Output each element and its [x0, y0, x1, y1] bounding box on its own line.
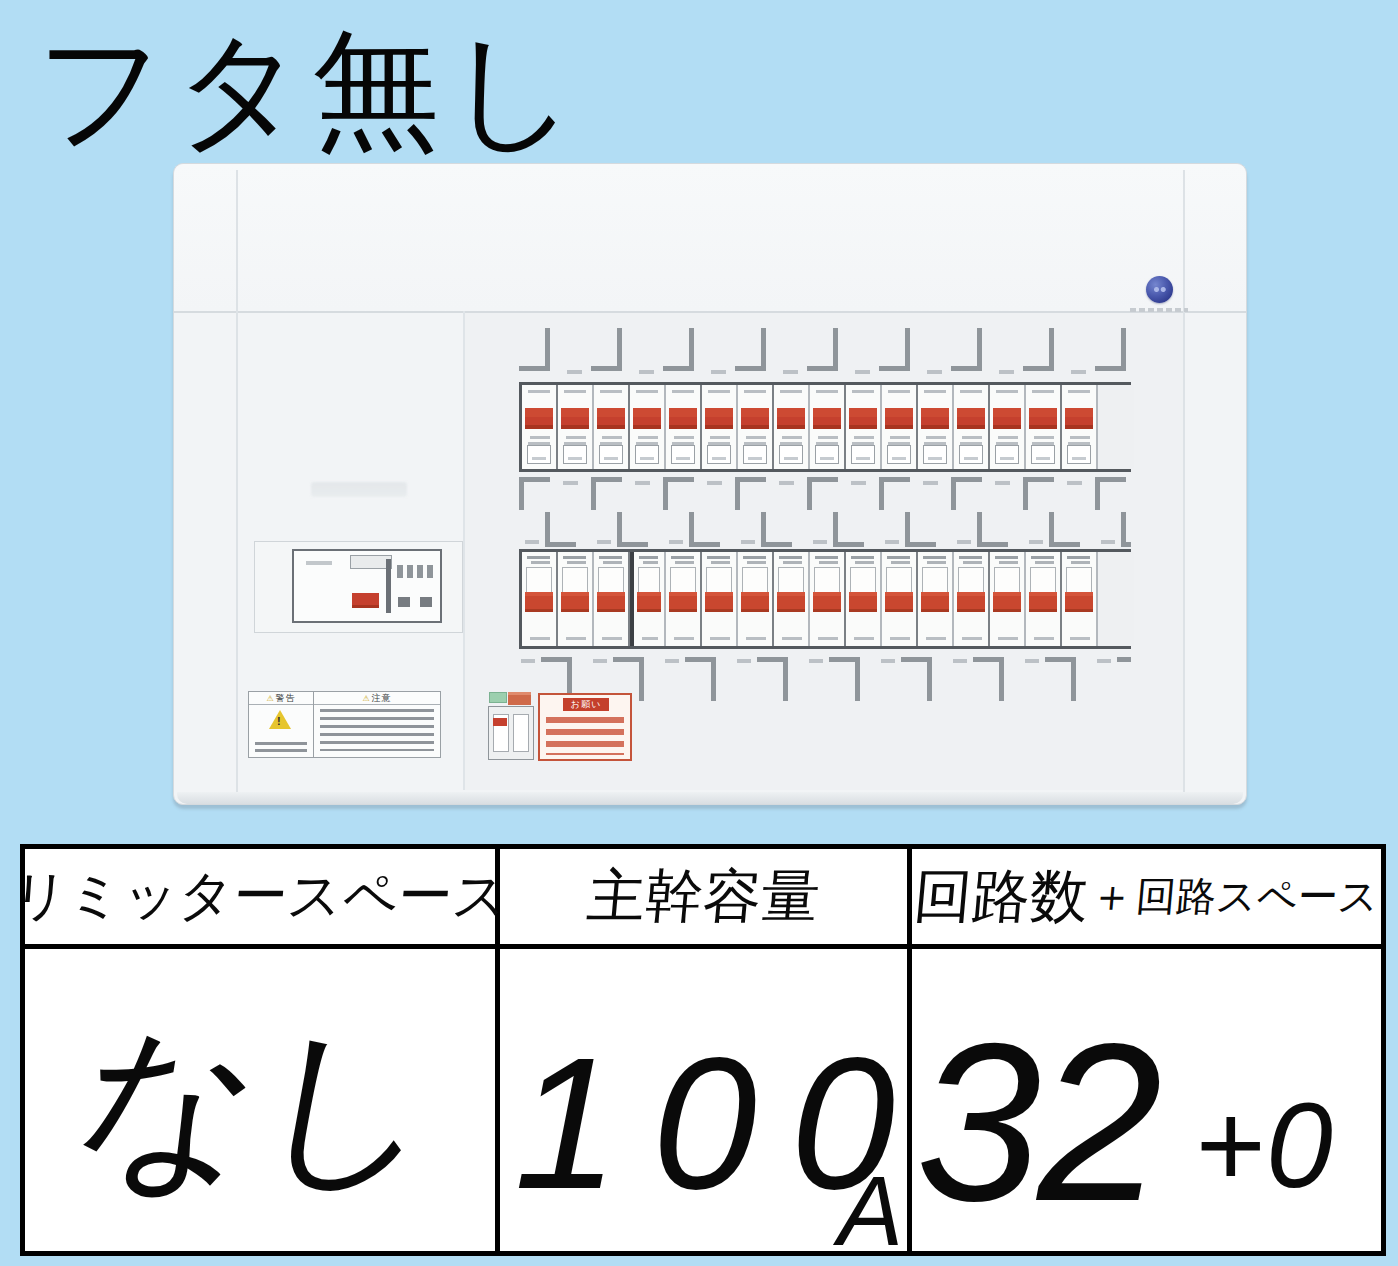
caution-fine-print — [320, 709, 434, 751]
circuit-breaker — [594, 385, 630, 469]
circuit-breaker — [702, 552, 738, 646]
circuit-breaker — [810, 552, 846, 646]
panel-right-flange-seam — [1183, 170, 1185, 794]
circuit-breaker — [882, 385, 918, 469]
warning-fine-print — [255, 742, 307, 752]
warning-triangle-icon: ⚠ — [362, 694, 370, 703]
circuit-breaker — [1026, 385, 1062, 469]
circuit-breaker — [630, 552, 666, 646]
wiring-stub-mark — [807, 510, 879, 549]
circuit-breaker — [774, 552, 810, 646]
brand-logo-badge — [1146, 276, 1173, 303]
wiring-stub-mark — [663, 649, 735, 705]
main-breaker-body — [292, 549, 442, 623]
warning-sticker-left: ⚠警告 — [249, 692, 314, 757]
circuit-breaker — [738, 552, 774, 646]
wiring-stub-mark — [519, 510, 591, 549]
wiring-stub-mark — [951, 649, 1023, 705]
header-limiter-space: リミッタースペース — [25, 849, 500, 944]
wiring-stub-mark — [879, 328, 951, 382]
wiring-stub-mark — [1095, 649, 1131, 705]
notice-label: お願い — [538, 693, 632, 761]
wiring-stub-mark — [1023, 649, 1095, 705]
circuit-breaker — [1062, 552, 1098, 646]
value-limiter-space: なし — [25, 949, 500, 1251]
main-breaker-unit — [254, 541, 463, 633]
wiring-stub-mark — [735, 472, 807, 510]
hazard-triangle-icon — [269, 710, 291, 729]
wiring-stub-mark — [879, 649, 951, 705]
breaker-row-bottom — [519, 549, 1131, 649]
wiring-stub-mark — [1023, 510, 1095, 549]
wiring-stub-mark — [735, 328, 807, 382]
wiring-stub-mark — [735, 510, 807, 549]
empty-circuit-space — [1098, 552, 1134, 646]
warning-sticker-right: ⚠注意 — [314, 692, 440, 757]
spare-breaker-switch — [493, 718, 507, 726]
wiring-stub-mark — [1095, 328, 1131, 382]
wiring-stub-mark — [1023, 472, 1095, 510]
circuit-breaker — [558, 385, 594, 469]
spare-breaker-body — [488, 706, 534, 760]
circuit-breaker — [666, 385, 702, 469]
wiring-stub-mark — [663, 472, 735, 510]
breaker-row-top — [519, 382, 1131, 472]
circuit-breaker — [630, 385, 666, 469]
spec-table: リミッタースペース 主幹容量 回路数 ＋ 回路スペース なし 100 A 32 … — [20, 844, 1386, 1256]
wiring-stub-mark — [591, 472, 663, 510]
circuit-breaker — [846, 385, 882, 469]
distribution-board-panel: ⚠警告 ⚠注意 お願い — [173, 163, 1247, 805]
wiring-stub-mark — [807, 472, 879, 510]
circuit-breaker — [846, 552, 882, 646]
green-tag — [489, 692, 507, 703]
panel-top-band — [174, 164, 1246, 313]
circuit-breaker — [522, 385, 558, 469]
wiring-stubs-middle-upper — [519, 472, 1131, 510]
value-circuit-count: 32 +0 — [912, 949, 1381, 1251]
circuit-breaker — [1062, 385, 1098, 469]
brand-caption-text — [1130, 308, 1188, 312]
capacity-unit: A — [838, 1162, 903, 1260]
wiring-stub-mark — [1095, 472, 1131, 510]
header-main-capacity: 主幹容量 — [500, 849, 912, 944]
circuit-breaker — [990, 385, 1026, 469]
spec-table-header-row: リミッタースペース 主幹容量 回路数 ＋ 回路スペース — [25, 849, 1381, 949]
wiring-stub-mark — [951, 510, 1023, 549]
wiring-stub-mark — [519, 472, 591, 510]
wiring-stub-mark — [591, 510, 663, 549]
circuit-space-extra: +0 — [1194, 1085, 1335, 1205]
wiring-stub-mark — [663, 328, 735, 382]
main-breaker-switch — [352, 593, 379, 608]
panel-divider-seam — [463, 311, 465, 790]
circuit-breaker — [702, 385, 738, 469]
wiring-stub-mark — [879, 472, 951, 510]
wiring-stub-mark — [1095, 510, 1131, 549]
warning-header: ⚠警告 — [249, 692, 313, 705]
wiring-stubs-middle-lower — [519, 510, 1131, 549]
circuit-breaker — [882, 552, 918, 646]
wiring-stub-mark — [663, 510, 735, 549]
circuit-breaker — [954, 552, 990, 646]
panel-bottom-edge — [177, 792, 1243, 804]
red-tag — [508, 692, 531, 705]
wiring-stubs-top — [519, 328, 1131, 382]
header-circuit-count: 回路数 ＋ 回路スペース — [912, 849, 1381, 944]
circuit-breaker — [738, 385, 774, 469]
panel-left-flange-seam — [236, 170, 238, 794]
page-title: フタ無し — [36, 16, 585, 163]
wiring-stub-mark — [519, 328, 591, 382]
circuit-breaker — [666, 552, 702, 646]
circuit-breaker — [558, 552, 594, 646]
empty-circuit-space — [1098, 385, 1134, 469]
circuit-breaker — [918, 552, 954, 646]
wiring-stub-mark — [951, 472, 1023, 510]
wiring-stub-mark — [735, 649, 807, 705]
caution-header: ⚠注意 — [314, 692, 440, 705]
circuit-breaker — [954, 385, 990, 469]
spec-table-value-row: なし 100 A 32 +0 — [25, 949, 1381, 1251]
warning-sticker: ⚠警告 ⚠注意 — [248, 691, 441, 758]
circuit-breaker — [990, 552, 1026, 646]
wiring-stub-mark — [951, 328, 1023, 382]
notice-title: お願い — [563, 698, 609, 711]
wiring-stub-mark — [591, 328, 663, 382]
circuit-breaker — [522, 552, 558, 646]
wiring-stub-mark — [879, 510, 951, 549]
notice-text-lines — [546, 717, 624, 755]
value-main-capacity: 100 A — [500, 949, 912, 1251]
warning-triangle-icon: ⚠ — [266, 694, 274, 703]
circuit-breaker — [594, 552, 630, 646]
circuit-breaker — [810, 385, 846, 469]
spare-breaker — [488, 692, 534, 759]
circuit-breaker — [774, 385, 810, 469]
circuit-breaker — [1026, 552, 1062, 646]
circuit-breaker — [918, 385, 954, 469]
wiring-stub-mark — [807, 649, 879, 705]
embossed-logo — [311, 482, 407, 497]
wiring-stub-mark — [807, 328, 879, 382]
wiring-stub-mark — [1023, 328, 1095, 382]
